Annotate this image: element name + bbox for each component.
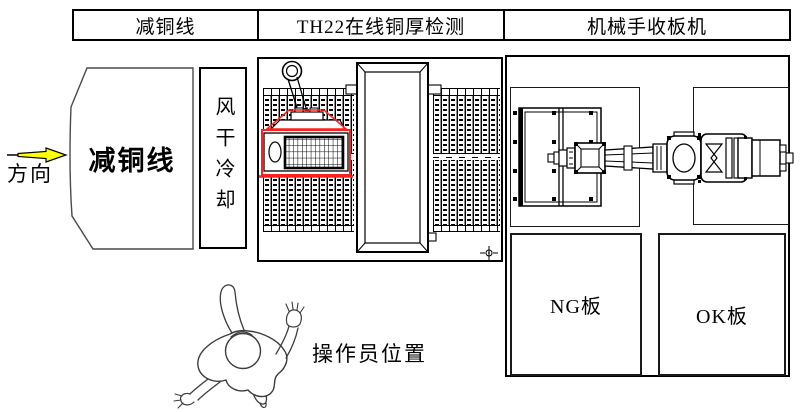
ng-board-label: NG板: [550, 290, 602, 319]
operator-head: [226, 334, 261, 369]
center-mark-icon: [480, 246, 498, 260]
center-frame: [355, 61, 433, 257]
inspection-machine-box: [257, 57, 503, 262]
header-label-robot-unloader: 机械手收板机: [587, 12, 707, 39]
diagram-root: 减铜线 TH22在线铜厚检测 机械手收板机 方向 减铜线 风干冷却: [0, 0, 800, 412]
direction-label: 方向: [7, 158, 67, 188]
operator-position-label: 操作员位置: [312, 338, 452, 368]
copper-line-label: 减铜线: [72, 139, 192, 178]
ok-board-label: OK板: [696, 300, 748, 329]
ng-board-bin: NG板: [510, 233, 642, 376]
header-strip: 减铜线 TH22在线铜厚检测 机械手收板机: [72, 9, 791, 41]
header-cell-th22-inspection: TH22在线铜厚检测: [259, 11, 505, 39]
header-cell-copper-line: 减铜线: [74, 11, 259, 39]
robot-zone-box: NG板 OK板: [505, 55, 790, 377]
header-label-copper-line: 减铜线: [135, 12, 195, 39]
device-grid: [285, 137, 343, 168]
header-label-th22-inspection: TH22在线铜厚检测: [297, 12, 465, 39]
header-cell-robot-unloader: 机械手收板机: [505, 11, 789, 39]
operator-figure: [168, 270, 320, 412]
scanner-device: [258, 102, 354, 182]
ok-board-bin: OK板: [658, 233, 786, 376]
cooling-box: 风干冷却: [199, 67, 247, 249]
robot-arm-icon: [548, 128, 794, 188]
cooling-label: 风干冷却: [213, 96, 233, 220]
device-window: [269, 142, 281, 162]
